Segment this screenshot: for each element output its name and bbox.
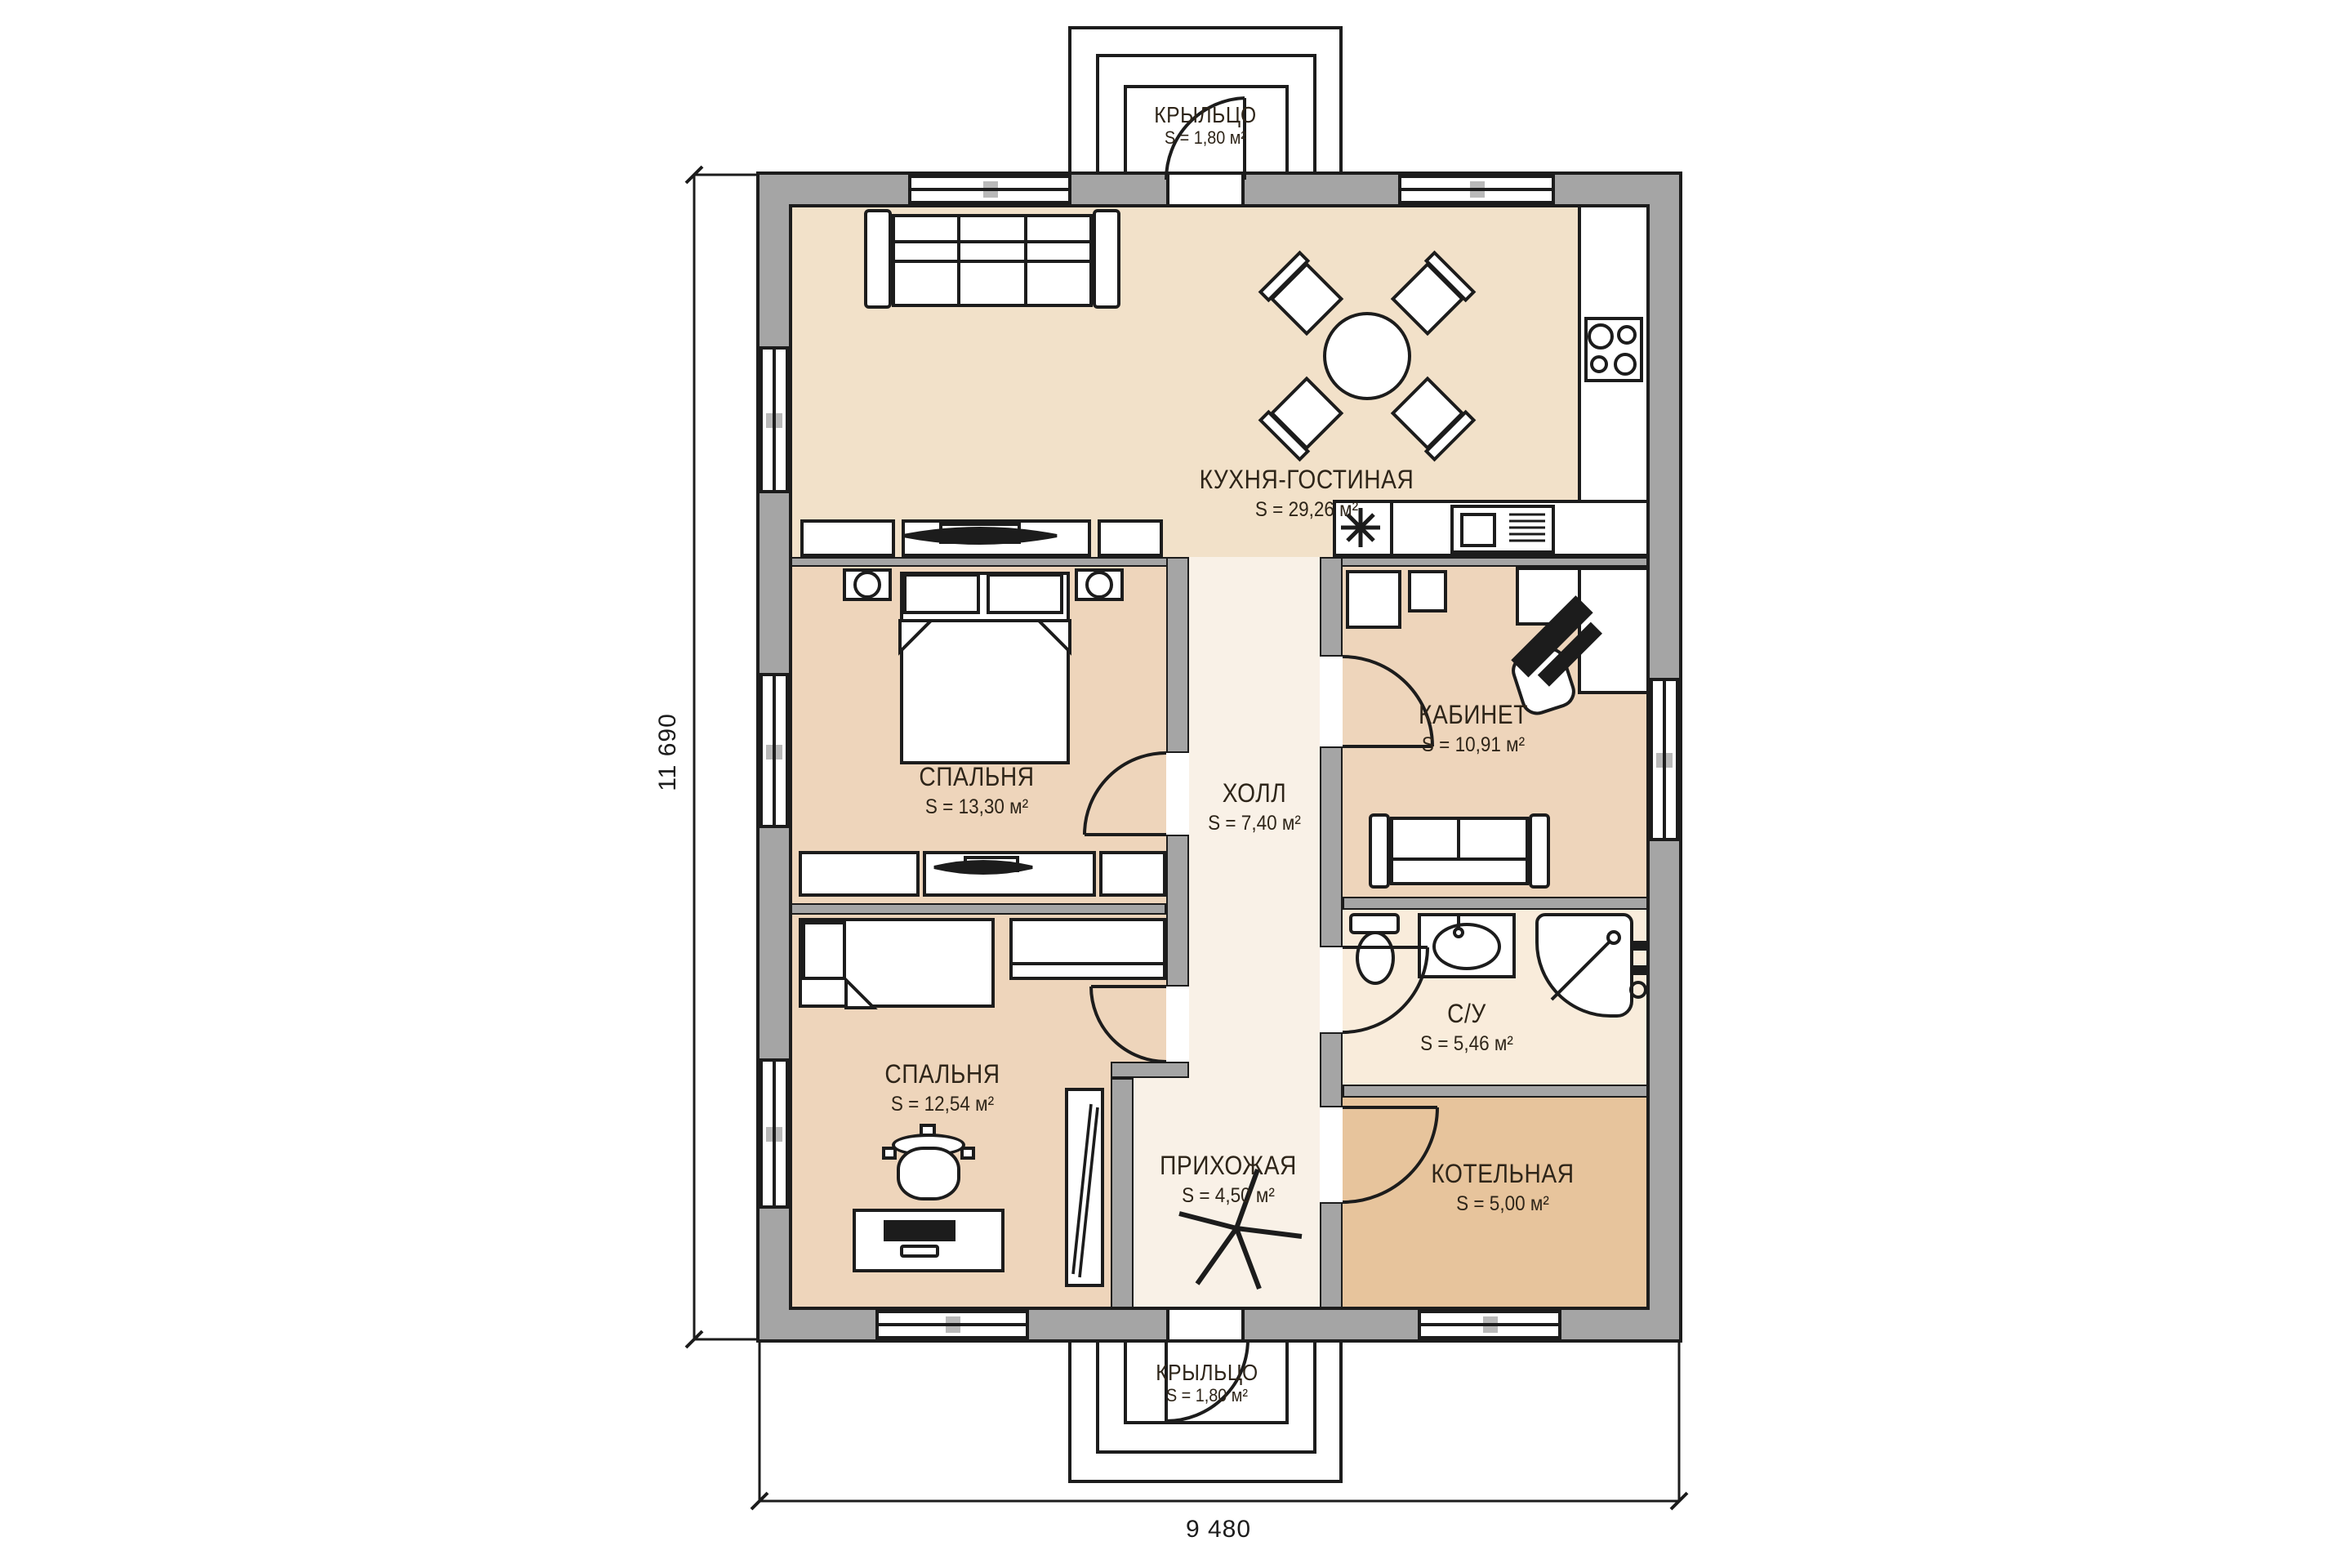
label-bathroom: С/У S = 5,46 м² bbox=[1336, 1001, 1597, 1056]
computer-icon bbox=[1513, 598, 1606, 690]
blanket-fold bbox=[1039, 621, 1070, 652]
tv-icon bbox=[903, 528, 1057, 543]
room-area: S = 12,54 м² bbox=[825, 1093, 1060, 1117]
dining-chair-icon bbox=[1260, 252, 1341, 333]
room-name: СПАЛЬНЯ bbox=[862, 764, 1092, 795]
mirror-glass bbox=[1073, 1104, 1098, 1277]
room-area: S = 4,50 м² bbox=[1111, 1184, 1346, 1209]
dining-chair-icon bbox=[1393, 379, 1474, 460]
room-name: ПРИХОЖАЯ bbox=[1113, 1153, 1343, 1184]
room-name: ХОЛЛ bbox=[1168, 781, 1340, 812]
dish-drainer-icon bbox=[1509, 514, 1545, 541]
shower-knob-icon bbox=[1631, 982, 1646, 997]
label-porch-top: КРЫЛЬЦО S = 1,80 м² bbox=[1075, 101, 1336, 149]
page: КУХНЯ-ГОСТИНАЯ S = 29,26 м² СПАЛЬНЯ S = … bbox=[0, 0, 2352, 1568]
room-area: S = 10,91 м² bbox=[1356, 733, 1591, 758]
room-name: СПАЛЬНЯ bbox=[827, 1062, 1058, 1093]
room-name: КРЫЛЬЦО bbox=[1092, 1359, 1322, 1386]
cooktop-burners bbox=[1589, 325, 1635, 374]
dining-chair-icon bbox=[1260, 379, 1341, 460]
lamp-icon bbox=[1087, 572, 1111, 597]
label-bedroom-2: СПАЛЬНЯ S = 12,54 м² bbox=[812, 1062, 1073, 1116]
label-entry: ПРИХОЖАЯ S = 4,50 м² bbox=[1098, 1153, 1359, 1208]
room-area: S = 1,80 м² bbox=[1088, 128, 1323, 149]
room-name: КРЫЛЬЦО bbox=[1090, 101, 1321, 128]
room-name: С/У bbox=[1352, 1001, 1582, 1032]
dimension-height-label: 11 690 bbox=[654, 695, 682, 809]
label-kitchen-living: КУХНЯ-ГОСТИНАЯ S = 29,26 м² bbox=[1127, 467, 1486, 522]
room-area: S = 5,00 м² bbox=[1385, 1192, 1620, 1217]
blanket-fold bbox=[846, 980, 874, 1008]
room-area: S = 13,30 м² bbox=[859, 795, 1094, 820]
sofa-seams bbox=[1390, 817, 1529, 859]
lamp-icon bbox=[855, 572, 880, 597]
label-hall: ХОЛЛ S = 7,40 м² bbox=[1156, 781, 1352, 835]
room-name: КОТЕЛЬНАЯ bbox=[1388, 1161, 1618, 1192]
shower-door-line bbox=[1552, 941, 1610, 1000]
label-bedroom-1: СПАЛЬНЯ S = 13,30 м² bbox=[846, 764, 1107, 819]
dining-chair-icon bbox=[1393, 252, 1474, 333]
sofa-seams bbox=[892, 214, 1093, 307]
room-area: S = 5,46 м² bbox=[1349, 1032, 1584, 1057]
tv-icon bbox=[934, 862, 1032, 873]
floor-plan: КУХНЯ-ГОСТИНАЯ S = 29,26 м² СПАЛЬНЯ S = … bbox=[0, 0, 2352, 1568]
label-boiler: КОТЕЛЬНАЯ S = 5,00 м² bbox=[1372, 1161, 1633, 1216]
room-area: S = 29,26 м² bbox=[1145, 498, 1468, 523]
blanket-fold bbox=[900, 621, 931, 652]
door-swing-icon bbox=[1091, 987, 1166, 1062]
room-name: КАБИНЕТ bbox=[1358, 702, 1588, 733]
dimension-width-label: 9 480 bbox=[1153, 1516, 1284, 1543]
room-area: S = 7,40 м² bbox=[1166, 812, 1343, 836]
label-porch-bottom: КРЫЛЬЦО S = 1,80 м² bbox=[1076, 1359, 1338, 1407]
shower-head-icon bbox=[1608, 932, 1619, 943]
label-office: КАБИНЕТ S = 10,91 м² bbox=[1343, 702, 1604, 757]
tap-icon bbox=[1454, 929, 1463, 937]
room-name: КУХНЯ-ГОСТИНАЯ bbox=[1148, 467, 1464, 498]
dimension-line-height bbox=[686, 167, 759, 1347]
dining-table-icon bbox=[1325, 314, 1410, 399]
room-area: S = 1,80 м² bbox=[1089, 1386, 1325, 1407]
